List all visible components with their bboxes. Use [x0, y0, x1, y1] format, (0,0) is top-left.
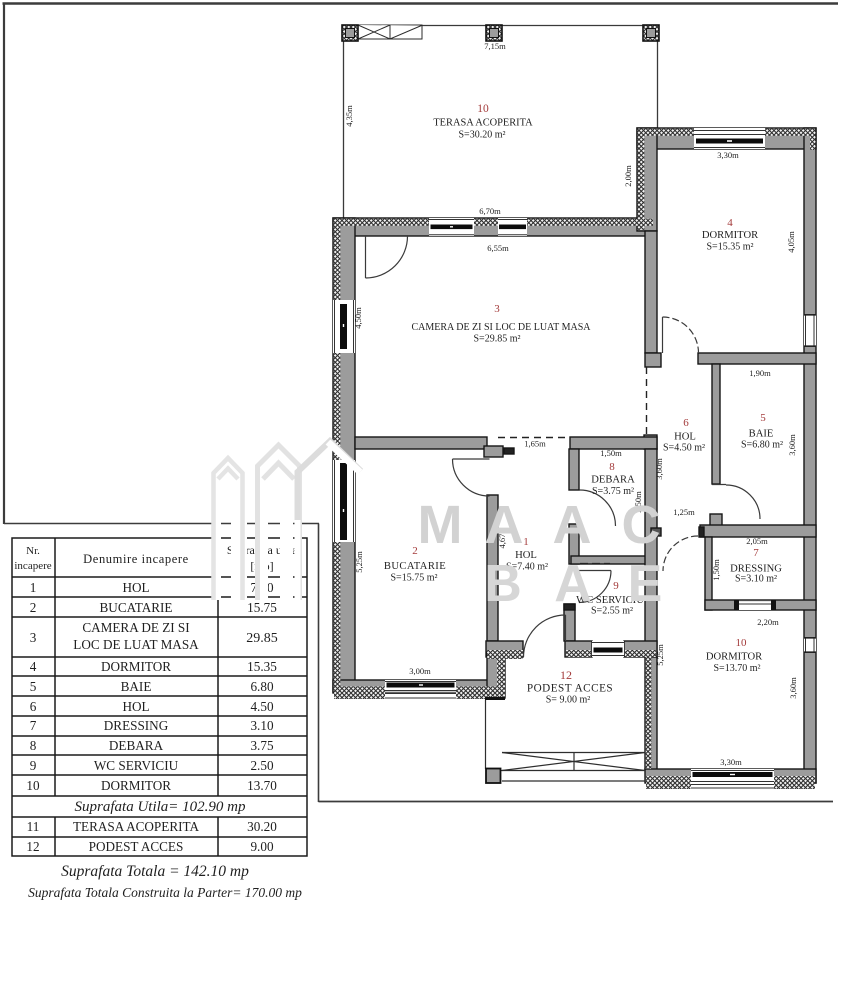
svg-text:5: 5	[30, 679, 37, 694]
svg-text:C: C	[622, 495, 661, 555]
svg-text:3: 3	[30, 630, 37, 645]
svg-text:4.50: 4.50	[250, 699, 273, 714]
svg-text:10: 10	[26, 778, 40, 793]
svg-text:BUCATARIE: BUCATARIE	[100, 600, 173, 615]
svg-text:Suprafata Totala = 142.10 mp: Suprafata Totala = 142.10 mp	[61, 863, 249, 880]
svg-text:Nr.: Nr.	[26, 545, 40, 557]
svg-text:6,70m: 6,70m	[479, 206, 501, 216]
svg-text:incapere: incapere	[14, 560, 51, 572]
svg-text:3.75: 3.75	[250, 738, 273, 753]
svg-text:S=30.20 m²: S=30.20 m²	[459, 130, 506, 141]
svg-text:4,35m: 4,35m	[344, 105, 354, 127]
svg-text:1,50m: 1,50m	[711, 559, 721, 581]
svg-text:DORMITOR: DORMITOR	[706, 652, 763, 663]
svg-text:4: 4	[727, 217, 733, 229]
svg-text:TERASA ACOPERITA: TERASA ACOPERITA	[73, 819, 200, 834]
svg-text:S=13.70 m²: S=13.70 m²	[714, 663, 761, 674]
svg-text:S=15.75 m²: S=15.75 m²	[391, 573, 438, 584]
svg-text:10: 10	[736, 637, 748, 649]
svg-text:3,00m: 3,00m	[409, 666, 431, 676]
svg-text:DORMITOR: DORMITOR	[101, 659, 171, 674]
svg-text:3.10: 3.10	[250, 718, 273, 733]
svg-text:30.20: 30.20	[247, 819, 277, 834]
svg-text:6,55m: 6,55m	[487, 243, 509, 253]
svg-text:TERASA ACOPERITA: TERASA ACOPERITA	[433, 118, 533, 129]
svg-text:3,60m: 3,60m	[787, 434, 797, 456]
svg-text:HOL: HOL	[674, 432, 696, 443]
svg-text:3,60m: 3,60m	[654, 458, 664, 480]
svg-text:S=4.50 m²: S=4.50 m²	[663, 443, 705, 454]
svg-text:8: 8	[30, 738, 37, 753]
svg-text:5,25m: 5,25m	[655, 644, 665, 666]
svg-text:2.50: 2.50	[250, 758, 273, 773]
svg-text:E: E	[628, 555, 663, 613]
svg-text:9: 9	[30, 758, 37, 773]
svg-text:DORMITOR: DORMITOR	[101, 778, 171, 793]
svg-text:3,30m: 3,30m	[720, 757, 742, 767]
svg-text:DRESSING: DRESSING	[104, 718, 169, 733]
svg-text:4: 4	[30, 659, 37, 674]
svg-text:3,60m: 3,60m	[788, 677, 798, 699]
svg-text:Suprafata Utila= 102.90 mp: Suprafata Utila= 102.90 mp	[75, 799, 246, 815]
svg-text:3,30m: 3,30m	[717, 150, 739, 160]
svg-text:13.70: 13.70	[247, 778, 277, 793]
svg-text:DEBARA: DEBARA	[591, 475, 635, 486]
svg-text:PODEST ACCES: PODEST ACCES	[89, 839, 184, 854]
svg-text:S= 9.00 m²: S= 9.00 m²	[546, 695, 590, 706]
svg-text:S=29.85 m²: S=29.85 m²	[474, 334, 521, 345]
svg-text:7,15m: 7,15m	[484, 41, 506, 51]
svg-text:CAMERA DE ZI SI LOC DE LUAT MA: CAMERA DE ZI SI LOC DE LUAT MASA	[412, 322, 592, 333]
svg-text:CAMERA DE ZI SI: CAMERA DE ZI SI	[82, 620, 189, 635]
svg-text:12: 12	[26, 839, 39, 854]
svg-text:11: 11	[27, 819, 40, 834]
svg-text:1,25m: 1,25m	[673, 507, 695, 517]
svg-text:9: 9	[613, 580, 619, 592]
svg-text:DORMITOR: DORMITOR	[702, 230, 759, 241]
svg-text:HOL: HOL	[122, 699, 149, 714]
svg-text:1,90m: 1,90m	[749, 368, 771, 378]
svg-text:12: 12	[560, 668, 572, 682]
svg-text:15.35: 15.35	[247, 659, 277, 674]
svg-text:Suprafata Totala Construita la: Suprafata Totala Construita la Parter= 1…	[28, 885, 302, 900]
svg-text:1,65m: 1,65m	[524, 439, 546, 449]
svg-text:DEBARA: DEBARA	[109, 738, 164, 753]
svg-text:5: 5	[760, 412, 766, 424]
svg-text:2,05m: 2,05m	[746, 536, 768, 546]
svg-text:5,25m: 5,25m	[354, 551, 364, 573]
svg-text:1,50m: 1,50m	[600, 448, 622, 458]
svg-text:2: 2	[30, 600, 37, 615]
svg-text:10: 10	[477, 103, 489, 115]
svg-text:9.00: 9.00	[250, 839, 273, 854]
svg-text:4,50m: 4,50m	[353, 307, 363, 329]
svg-text:BAIE: BAIE	[749, 429, 774, 440]
svg-text:6: 6	[683, 417, 689, 429]
svg-text:S=15.35 m²: S=15.35 m²	[707, 242, 754, 253]
svg-text:6.80: 6.80	[250, 679, 273, 694]
svg-text:B: B	[484, 555, 522, 613]
svg-text:A: A	[485, 495, 524, 555]
svg-text:2,00m: 2,00m	[623, 165, 633, 187]
svg-text:Denumire incapere: Denumire incapere	[83, 552, 189, 566]
svg-text:7: 7	[753, 547, 759, 559]
svg-text:2,20m: 2,20m	[757, 617, 779, 627]
svg-text:1: 1	[30, 580, 37, 595]
svg-text:4,05m: 4,05m	[786, 231, 796, 253]
svg-text:7: 7	[30, 718, 37, 733]
svg-text:A: A	[553, 495, 592, 555]
svg-text:8: 8	[609, 461, 615, 473]
svg-text:M: M	[418, 495, 463, 555]
svg-text:LOC DE LUAT MASA: LOC DE LUAT MASA	[73, 637, 199, 652]
svg-text:15.75: 15.75	[247, 600, 277, 615]
svg-text:PODEST ACCES: PODEST ACCES	[527, 683, 613, 695]
svg-text:HOL: HOL	[122, 580, 149, 595]
svg-text:BAIE: BAIE	[121, 679, 152, 694]
svg-text:A: A	[554, 555, 592, 613]
svg-text:6: 6	[30, 699, 37, 714]
svg-text:WC SERVICIU: WC SERVICIU	[94, 758, 179, 773]
svg-text:3: 3	[494, 303, 500, 315]
svg-text:BUCATARIE: BUCATARIE	[384, 561, 446, 572]
svg-text:29.85: 29.85	[246, 631, 278, 646]
svg-text:S=6.80 m²: S=6.80 m²	[741, 440, 783, 451]
svg-text:1: 1	[523, 536, 529, 548]
svg-text:S=3.10 m²: S=3.10 m²	[735, 574, 777, 585]
